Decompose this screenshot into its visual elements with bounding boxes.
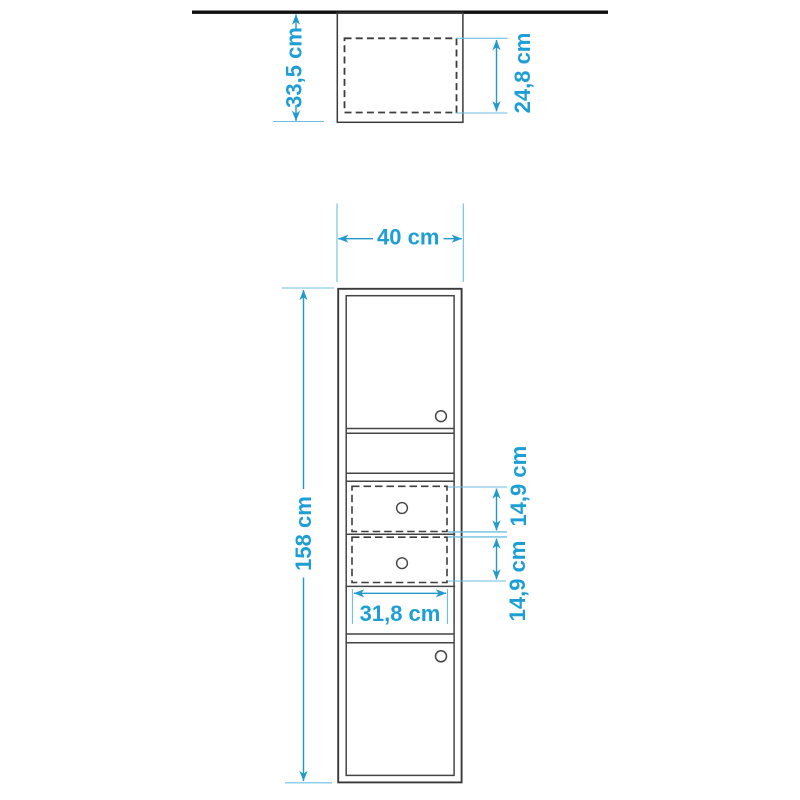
svg-text:14,9 cm: 14,9 cm [505, 541, 530, 622]
svg-text:40 cm: 40 cm [377, 225, 439, 250]
svg-text:33,5 cm: 33,5 cm [282, 27, 307, 108]
svg-text:14,9 cm: 14,9 cm [506, 446, 531, 527]
svg-text:31,8 cm: 31,8 cm [360, 601, 441, 626]
svg-text:158 cm: 158 cm [291, 496, 316, 571]
svg-text:24,8 cm: 24,8 cm [510, 33, 535, 114]
